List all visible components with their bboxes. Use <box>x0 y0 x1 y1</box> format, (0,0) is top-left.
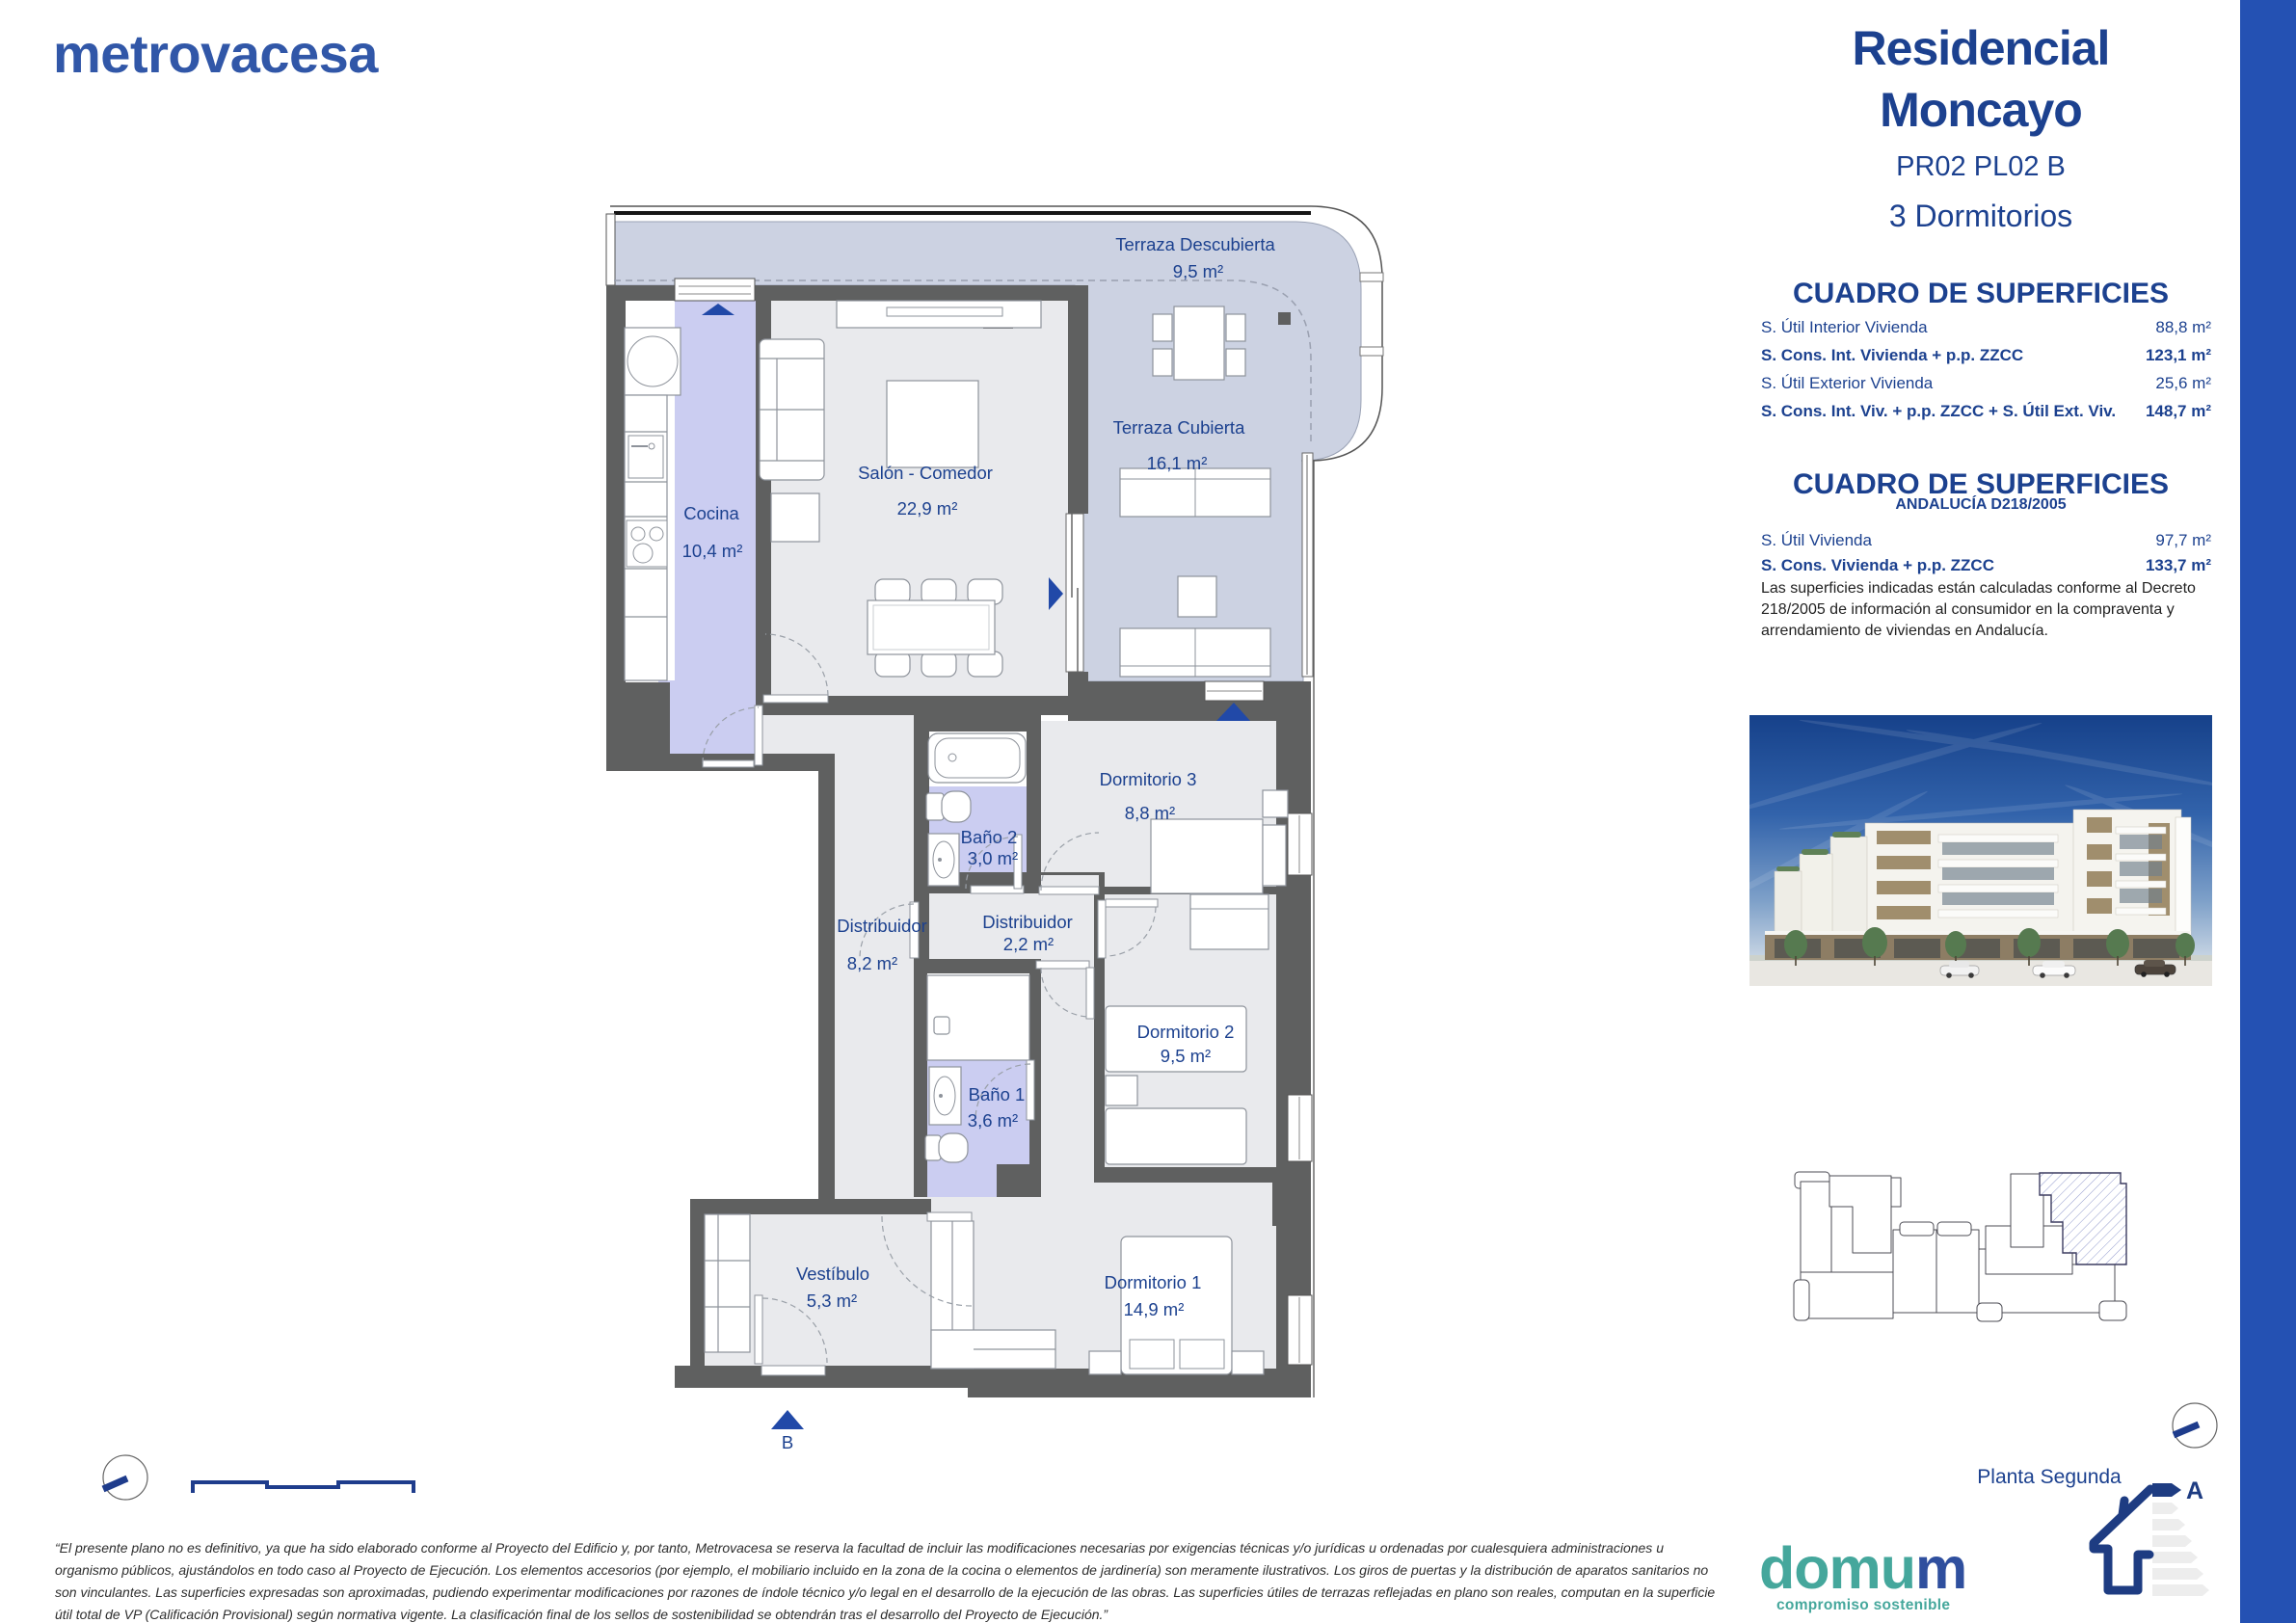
svg-text:3,6 m²: 3,6 m² <box>968 1110 1018 1131</box>
svg-text:2,2 m²: 2,2 m² <box>1003 934 1054 954</box>
svg-text:B: B <box>782 1432 793 1452</box>
svg-text:Dormitorio 3: Dormitorio 3 <box>1100 769 1197 789</box>
svg-text:3,0 m²: 3,0 m² <box>968 848 1018 868</box>
svg-text:8,8 m²: 8,8 m² <box>1125 803 1175 823</box>
svg-text:Vestíbulo: Vestíbulo <box>796 1264 869 1284</box>
svg-text:Salón - Comedor: Salón - Comedor <box>858 463 993 483</box>
svg-text:5,3 m²: 5,3 m² <box>807 1290 857 1311</box>
svg-text:14,9 m²: 14,9 m² <box>1124 1299 1185 1319</box>
svg-text:8,2 m²: 8,2 m² <box>847 953 897 973</box>
svg-text:Distribuidor: Distribuidor <box>982 912 1073 932</box>
svg-text:Cocina: Cocina <box>683 503 739 523</box>
svg-text:Dormitorio 1: Dormitorio 1 <box>1105 1272 1202 1292</box>
svg-text:16,1 m²: 16,1 m² <box>1147 453 1208 473</box>
svg-text:Baño 1: Baño 1 <box>969 1084 1026 1104</box>
svg-text:9,5 m²: 9,5 m² <box>1161 1046 1211 1066</box>
svg-text:Terraza Descubierta: Terraza Descubierta <box>1115 234 1275 254</box>
svg-text:Distribuidor: Distribuidor <box>837 916 927 936</box>
svg-text:22,9 m²: 22,9 m² <box>897 498 958 519</box>
svg-text:10,4 m²: 10,4 m² <box>682 541 743 561</box>
svg-text:9,5 m²: 9,5 m² <box>1173 261 1223 281</box>
svg-text:Terraza Cubierta: Terraza Cubierta <box>1113 417 1245 438</box>
svg-text:Baño 2: Baño 2 <box>961 827 1018 847</box>
svg-text:Dormitorio 2: Dormitorio 2 <box>1137 1022 1235 1042</box>
